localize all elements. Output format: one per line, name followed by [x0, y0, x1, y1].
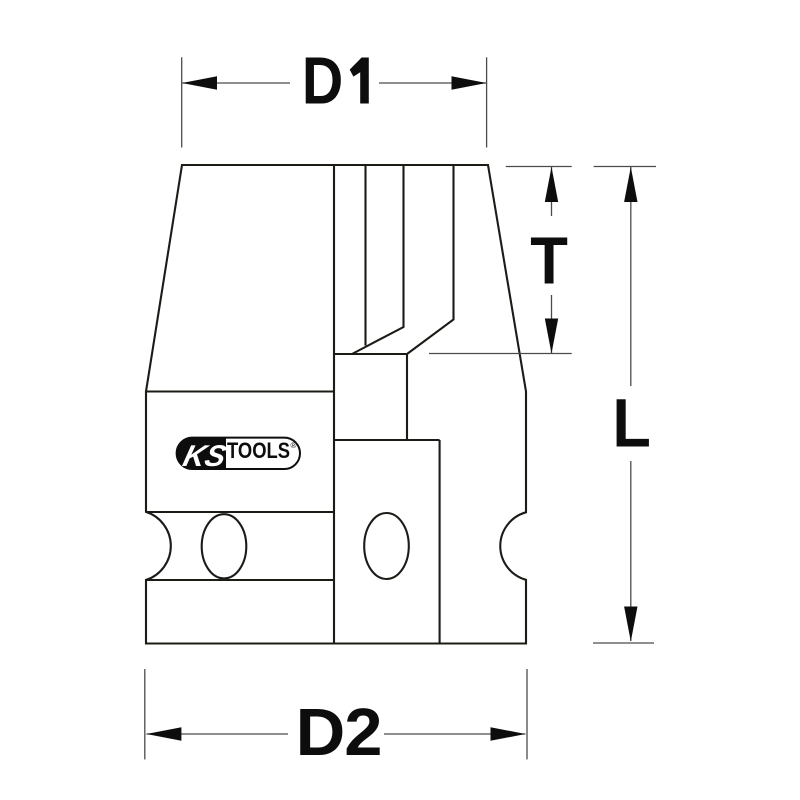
svg-text:D: D: [302, 44, 343, 118]
svg-text:T: T: [530, 223, 568, 298]
svg-text:®: ®: [291, 441, 297, 450]
svg-text:L: L: [612, 384, 650, 461]
svg-text:D2: D2: [296, 696, 382, 770]
svg-text:KS: KS: [180, 439, 230, 472]
svg-text:TOOLS: TOOLS: [227, 438, 290, 463]
